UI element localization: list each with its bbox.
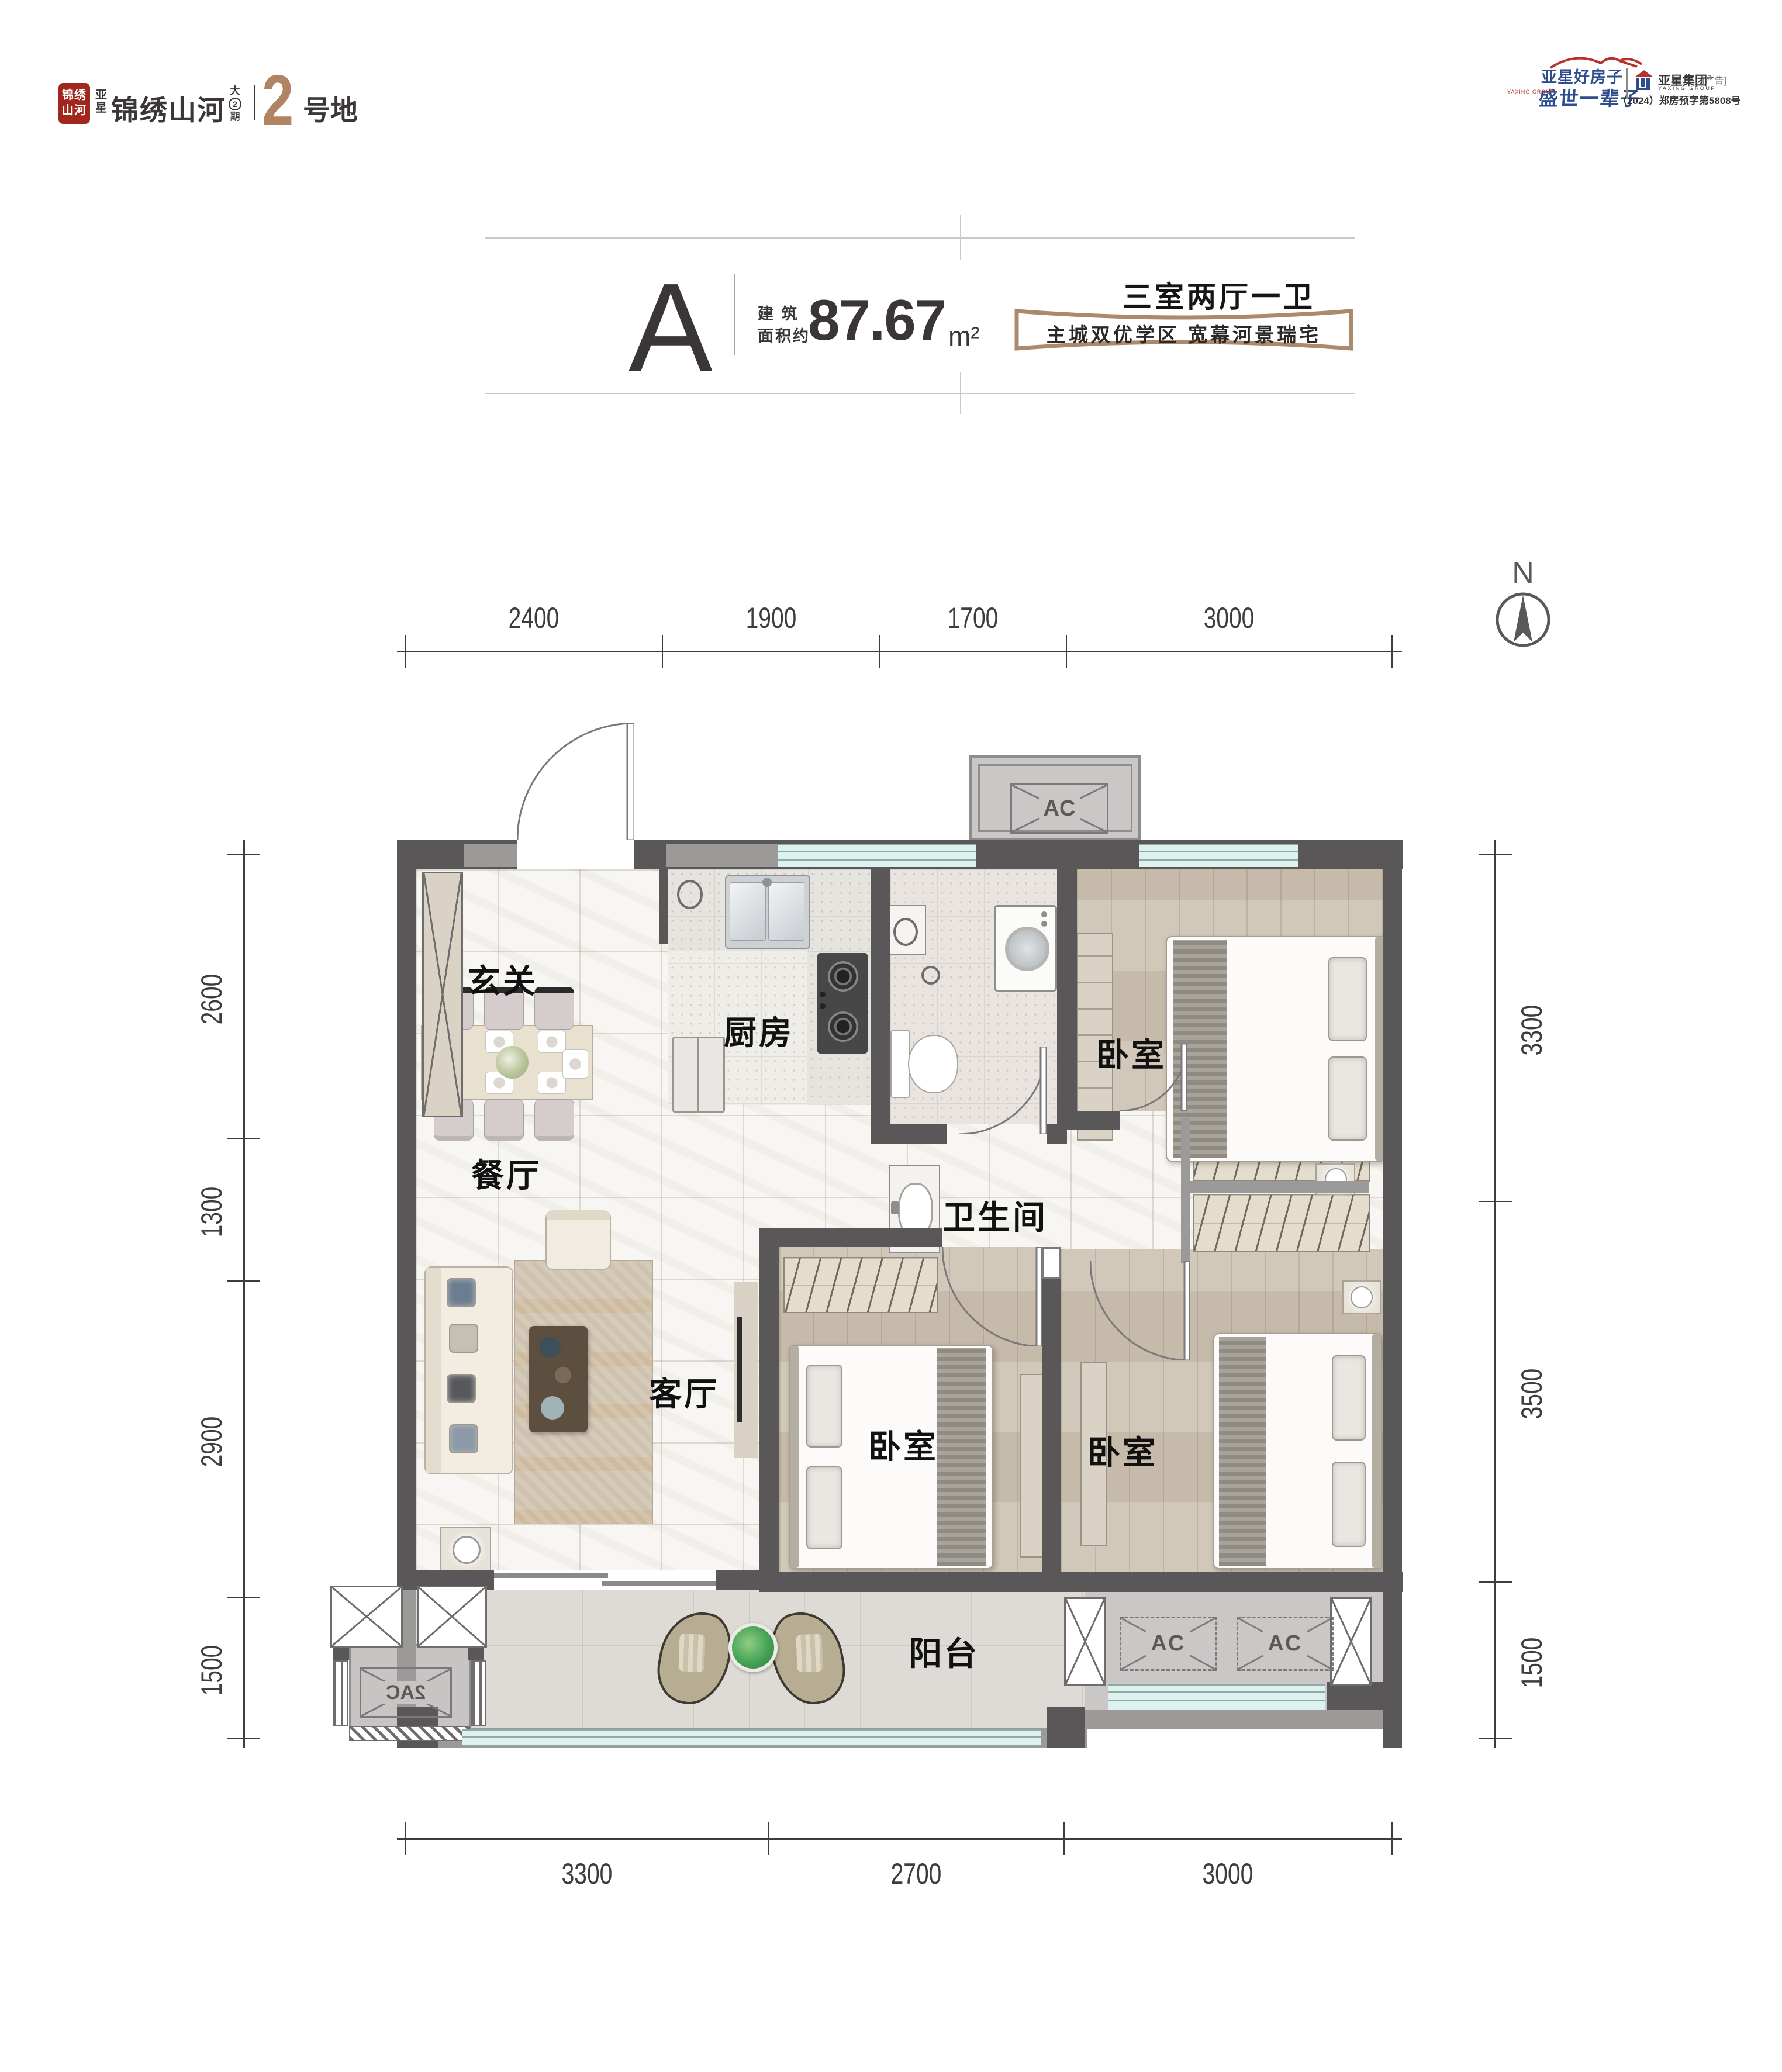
dim-chain-right [1494,840,1496,1748]
dim-bottom-2: 3000 [1182,1857,1273,1891]
fridge [672,1037,725,1113]
room-label-kitchen: 厨房 [724,1007,794,1054]
ac2-label: 2AC [382,1681,429,1704]
hatch-strip [349,1726,470,1741]
sofa [424,1266,513,1474]
dim-top-0: 2400 [488,601,579,635]
ac-label: AC [1263,1631,1307,1656]
counter-ring [677,880,703,909]
wall-bath-bottom [1047,1124,1067,1144]
ac-box: AC [1237,1617,1334,1671]
wall-bath-bedroom1 [1057,869,1077,1130]
wall-bedroom1-bottom [1077,1111,1120,1130]
entry-door [517,723,634,840]
bedroom2-door [942,1247,1042,1346]
dim-top-3: 3000 [1183,601,1275,635]
room-label-bedroom3: 卧室 [1087,1427,1158,1474]
room-label-bedroom2: 卧室 [868,1421,938,1468]
vent-grille [471,1660,486,1726]
dining-chair [534,987,574,1030]
window-bedroom3 [1108,1684,1325,1710]
shower-icon [921,966,940,985]
dim-left-2: 2900 [195,1396,229,1487]
dim-right-0: 3300 [1515,985,1549,1076]
title-divider [734,274,735,355]
dim-left-3: 1500 [195,1625,229,1716]
ac-corner-block [1327,1682,1383,1710]
dim-right-2: 1500 [1515,1617,1549,1708]
area-label: 建 筑 面积约 [758,303,810,347]
balcony-plant [728,1623,778,1672]
bedroom3-wardrobe [1193,1194,1370,1252]
tv [737,1317,742,1422]
entry-opening [517,840,634,869]
parapet-corner [1047,1707,1085,1748]
bedroom1-bed [1166,936,1386,1162]
kitchen-sink [725,875,810,949]
shaft-x-icon [417,1586,487,1648]
ac-label: AC [1039,796,1080,821]
room-label-bathroom: 卫生间 [942,1192,1048,1239]
toilet [890,1029,958,1098]
dim-top-2: 1700 [927,601,1018,635]
vent-grille [333,1660,348,1726]
room-label-living: 客厅 [649,1368,719,1415]
closet-divider [1181,1118,1190,1263]
dim-top-1: 1900 [726,601,817,635]
dim-left-1: 1300 [195,1166,229,1258]
ac-box: 2AC [360,1667,452,1718]
wall-bedroom2-left [759,1228,779,1592]
floorplan-poster: 锦绣山河 亚星 锦绣山河 大 2 期 2 号地 亚星好房子 盛世一辈子 YAXI… [0,0,1782,2072]
dim-bottom-1: 2700 [871,1857,962,1891]
tagline-text: 主城双优学区 宽幕河景瑞宅 [1013,319,1355,347]
dim-chain-top [397,651,1402,652]
bedroom3-bed [1213,1333,1382,1569]
window-kitchen [778,844,976,867]
area-value: 87.67 [808,291,945,348]
armchair [545,1210,611,1270]
room-label-bedroom1: 卧室 [1096,1029,1166,1076]
crop-line-top [485,237,1355,239]
window-balcony [462,1729,1041,1746]
crop-tick-top [960,215,961,260]
coffee-table [529,1326,588,1432]
window-bedroom1 [1139,844,1298,867]
dim-chain-left [243,840,245,1748]
foyer-cabinet [422,872,463,1117]
bathroom-door [959,1047,1047,1134]
ac-box: AC [1120,1617,1217,1671]
crop-line-bottom [485,393,1355,394]
door-jamb [1042,1247,1061,1279]
shaft-x-icon [330,1586,403,1648]
area-unit: m² [948,320,980,352]
room-label-foyer: 玄关 [468,955,538,1003]
north-compass-icon: N [1485,555,1561,672]
table-flowers [496,1046,529,1079]
shaft-x-icon [1064,1597,1106,1686]
dim-left-0: 2600 [195,954,229,1045]
room-label-balcony: 阳台 [909,1628,979,1675]
stove [817,953,868,1054]
washing-machine [994,905,1057,992]
tagline-badge: 主城双优学区 宽幕河景瑞宅 [1013,304,1355,355]
wall-infill [666,844,778,867]
wall-bath-left [871,869,890,1144]
wall-kitchen-stub [659,869,668,944]
balcony-sliding-door [494,1570,716,1590]
wall-bedroom23-divider [1042,1279,1061,1592]
dim-right-1: 3500 [1515,1348,1549,1439]
bedroom3-nightstand [1342,1280,1381,1314]
compass-n-label: N [1485,555,1561,590]
wall-bedrooms-bottom [759,1572,1403,1592]
closet-divider [1190,1181,1369,1193]
ac-box: AC [1010,783,1108,834]
ac-label: AC [1146,1631,1190,1656]
wall-bedroom2-top [759,1228,942,1247]
dining-chair [484,1099,524,1141]
crop-tick-bottom [960,372,961,414]
wall-right [1383,840,1402,1748]
title-block: A 建 筑 面积约 87.67 m² 三室两厅一卫 主城双优学区 宽幕河景瑞宅 [0,0,1782,438]
side-table-lamp [440,1527,491,1571]
ac-bottom-band [1085,1710,1383,1729]
wall-balcony-stub [716,1570,759,1590]
dim-chain-bottom [397,1838,1402,1840]
bedroom3-door [1090,1261,1190,1360]
bedroom2-wardrobe [783,1257,938,1313]
room-label-dining: 餐厅 [471,1149,541,1197]
wall-bath-bottom [871,1124,947,1144]
dim-bottom-0: 3300 [541,1857,633,1891]
wall-infill [464,844,517,867]
unit-letter: A [621,264,720,390]
wall-left [397,840,416,1590]
shaft-x-icon [1330,1597,1372,1686]
dining-chair [534,1099,574,1141]
